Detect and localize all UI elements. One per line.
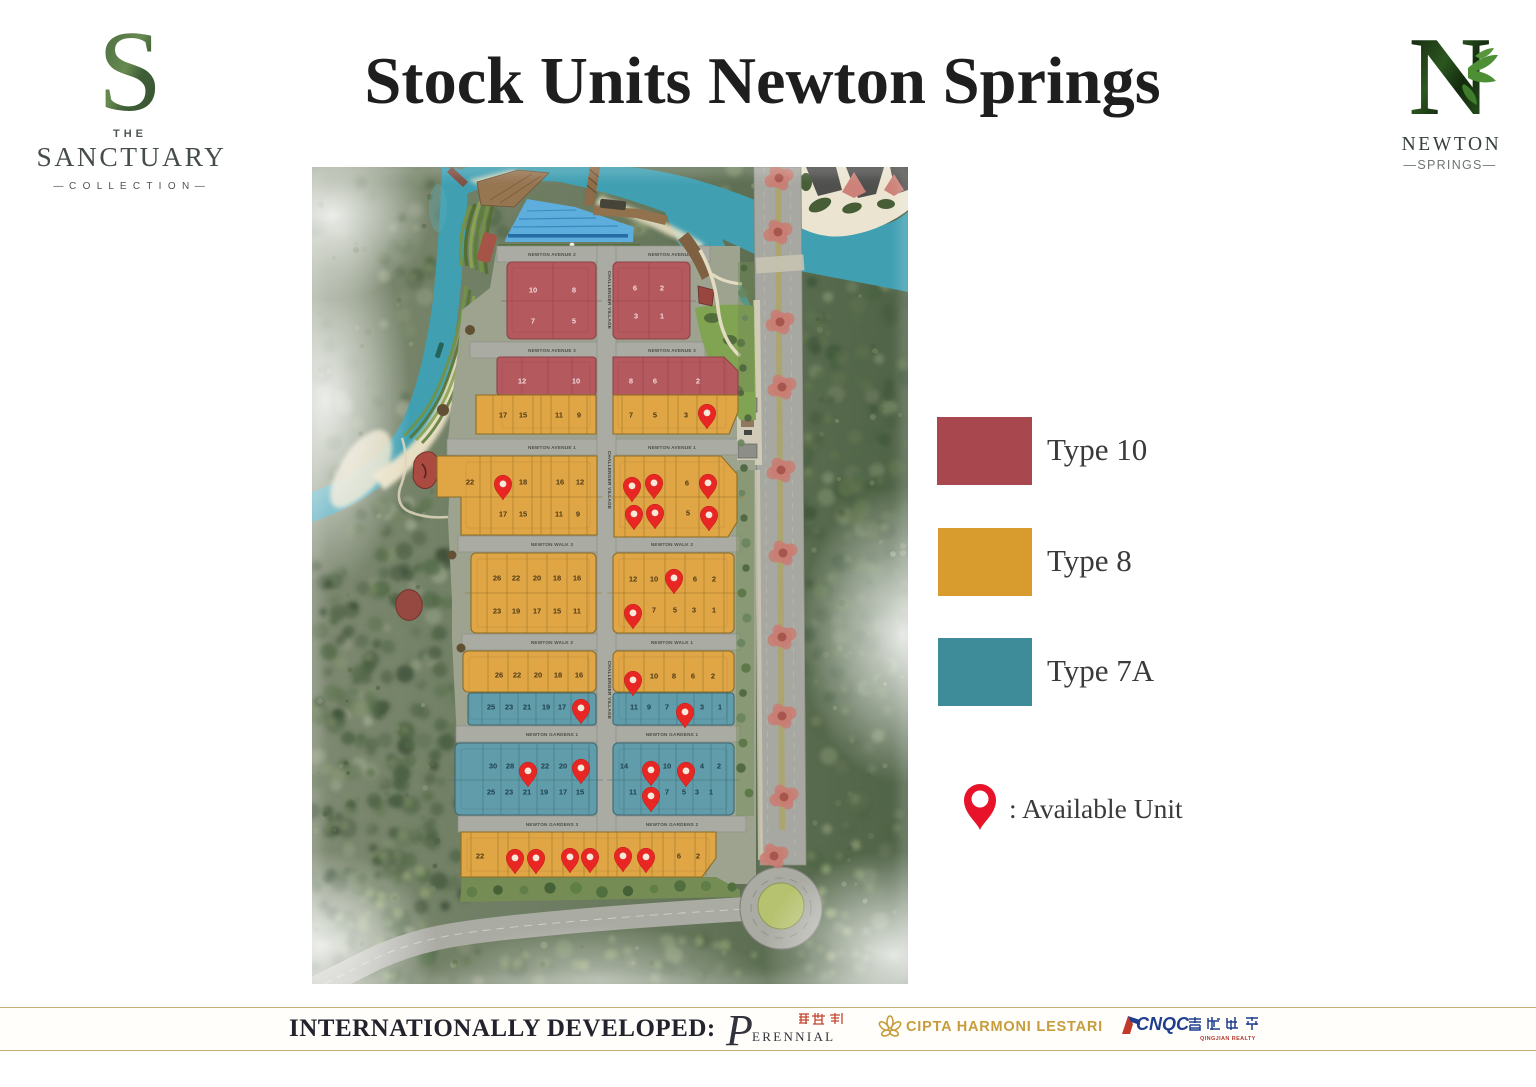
- svg-text:S: S: [98, 26, 163, 114]
